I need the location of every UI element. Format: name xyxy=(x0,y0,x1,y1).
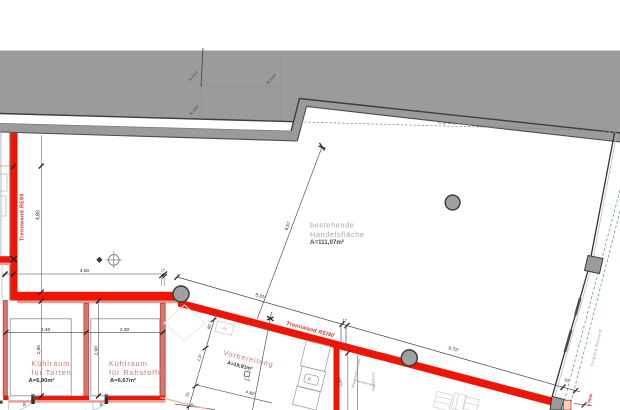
svg-text:Handelsfläche: Handelsfläche xyxy=(310,230,365,239)
svg-text:4,60: 4,60 xyxy=(80,268,90,274)
svg-text:2,90: 2,90 xyxy=(94,346,100,356)
svg-text:bestehende: bestehende xyxy=(310,221,355,230)
svg-text:A=6,67m²: A=6,67m² xyxy=(110,377,136,384)
svg-text:für Rohstoffe: für Rohstoffe xyxy=(109,368,163,377)
svg-text:Kühlraum: Kühlraum xyxy=(109,359,148,368)
svg-text:90: 90 xyxy=(100,403,104,407)
svg-text:Kühlraum: Kühlraum xyxy=(32,359,71,368)
svg-text:Trennwand RE90: Trennwand RE90 xyxy=(20,193,26,241)
svg-text:17: 17 xyxy=(161,269,165,273)
svg-text:2,87: 2,87 xyxy=(338,377,343,386)
svg-text:4,80: 4,80 xyxy=(35,210,41,220)
svg-text:Haustechnik: Haustechnik xyxy=(372,372,376,391)
svg-text:2,90: 2,90 xyxy=(36,345,42,355)
svg-text:A=111,07m²: A=111,07m² xyxy=(310,239,344,246)
svg-text:A=6,90m²: A=6,90m² xyxy=(29,377,55,384)
svg-text:90: 90 xyxy=(23,403,27,407)
svg-text:2,40: 2,40 xyxy=(41,327,51,333)
svg-text:2,30: 2,30 xyxy=(120,327,130,333)
svg-text:für Torten: für Torten xyxy=(32,368,72,377)
